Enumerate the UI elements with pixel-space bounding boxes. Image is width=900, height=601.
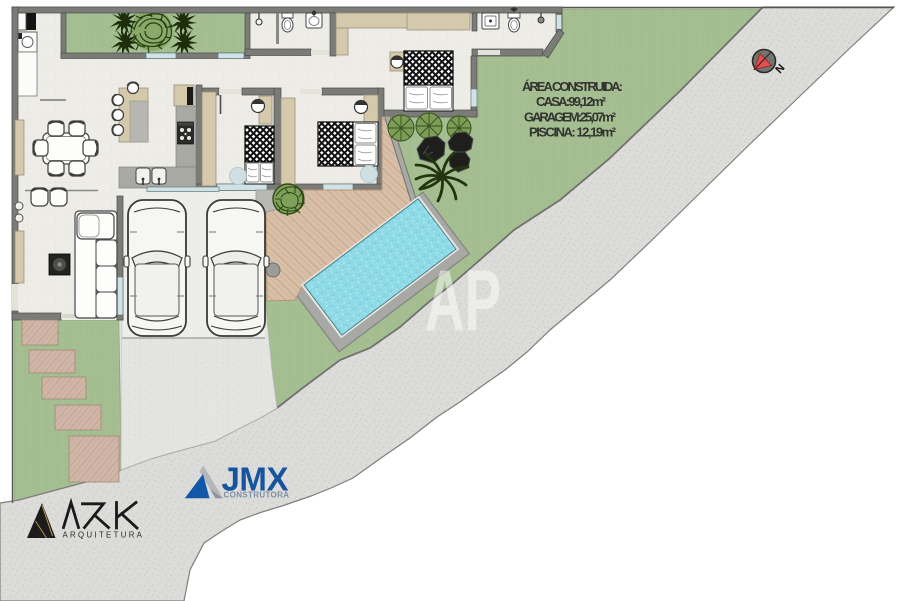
svg-text:ARQUITETURA: ARQUITETURA <box>63 531 145 540</box>
svg-text:AP: AP <box>425 253 501 349</box>
svg-text:PISCINA: 12,19m²: PISCINA: 12,19m² <box>529 125 617 140</box>
svg-text:CONSTRUTORA: CONSTRUTORA <box>224 491 290 500</box>
svg-text:GARAGEM:25,07m²: GARAGEM:25,07m² <box>524 110 617 125</box>
svg-text:ÁREA CONSTRUIDA:: ÁREA CONSTRUIDA: <box>522 79 623 94</box>
svg-text:CASA:99,12m²: CASA:99,12m² <box>536 94 607 109</box>
